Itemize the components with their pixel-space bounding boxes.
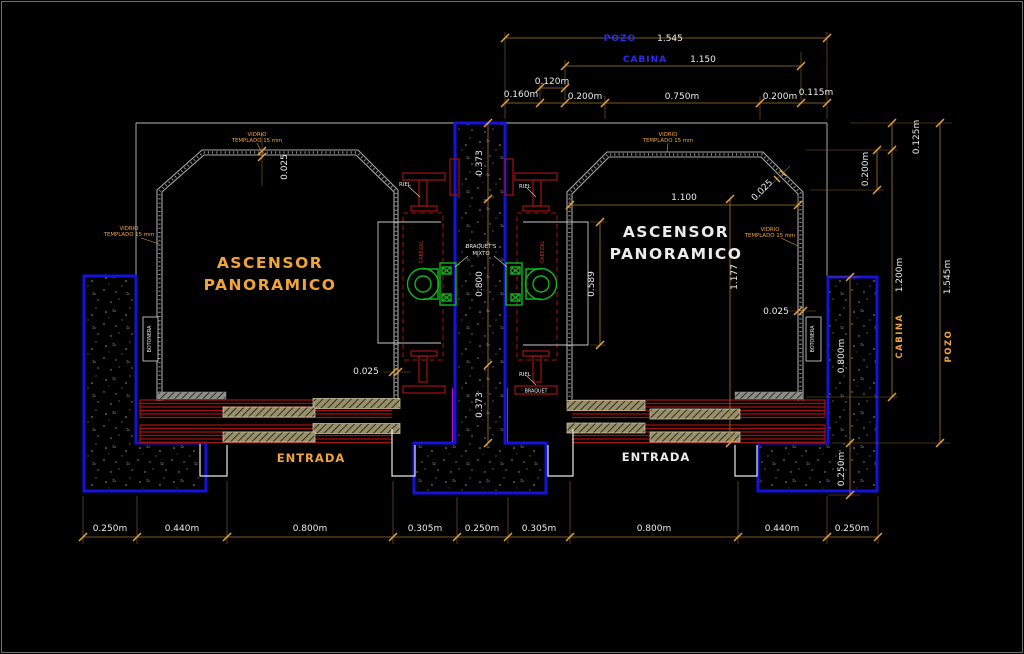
dim-pozo-top-value: 1.545 — [657, 34, 683, 44]
riel-label-top-right: RIEL — [519, 184, 531, 190]
cad-viewport: POZO 1.545 CABINA 1.150 0.120m 0.160m 0.… — [0, 0, 1024, 654]
dim-cabina-right-value: 1.200m — [895, 258, 905, 293]
elevator-plan-drawing: POZO 1.545 CABINA 1.150 0.120m 0.160m 0.… — [0, 0, 1024, 654]
right-cabin-title-1: ASCENSOR — [623, 223, 729, 241]
dim-cabina-top-label: CABINA — [623, 55, 667, 65]
riel-label-bottom-right: RIEL — [519, 372, 531, 378]
dim-0750m: 0.750m — [665, 92, 700, 102]
dim-pozo-right-label: POZO — [944, 330, 954, 363]
dim-0200m-rightside: 0.200m — [861, 152, 871, 187]
bottom-dimensions: 0.250m 0.440m 0.800m 0.305m 0.250m 0.305… — [93, 524, 870, 534]
dim-pozo-right-value: 1.545m — [943, 260, 953, 295]
dim-0025-left-bottom: 0.025 — [353, 367, 379, 377]
glass-thickness-dims: 0.025 0.025 0.025 0.025 — [280, 154, 789, 377]
right-cabezal-label: CABEZAL — [540, 241, 546, 264]
dim-0800m-right: 0.800m — [837, 339, 847, 374]
braquets-mixto-label-2: MIXTO — [472, 251, 489, 257]
top-dimensions: POZO 1.545 CABINA 1.150 0.120m 0.160m 0.… — [504, 34, 834, 102]
right-vidrio-side-2: TEMPLADO 15 mm — [744, 233, 796, 239]
dim-0025-left-top: 0.025 — [280, 154, 290, 180]
right-entrada-label: ENTRADA — [622, 450, 691, 464]
right-rail-assembly — [505, 159, 557, 394]
center-column-and-pit — [414, 123, 546, 493]
left-entrada-label: ENTRADA — [277, 451, 346, 465]
dim-bottom-0: 0.250m — [93, 524, 128, 534]
left-piston — [408, 263, 457, 305]
dim-pozo-top-label: POZO — [604, 34, 636, 44]
dim-0589: 0.589 — [587, 271, 597, 297]
right-botonera-label: BOTONERA — [810, 325, 816, 352]
dim-1100: 1.100 — [671, 193, 697, 203]
dim-0373-bottom: 0.373 — [475, 392, 485, 418]
dim-1177: 1.177 — [730, 264, 740, 290]
dim-0120m: 0.120m — [535, 77, 570, 87]
left-rail-assembly — [403, 159, 459, 393]
dim-bottom-2: 0.800m — [293, 524, 328, 534]
left-cabezal-label: CABEZAL — [419, 241, 425, 264]
right-piston — [506, 263, 557, 305]
dim-bottom-7: 0.440m — [765, 524, 800, 534]
dim-0250m-right: 0.250m — [837, 452, 847, 487]
right-vidrio-top-2: TEMPLADO 15 mm — [642, 138, 694, 144]
dim-0160m: 0.160m — [504, 90, 539, 100]
center-dimensions: 0.373 0.800 0.373 0.589 1.177 1.100 — [475, 150, 740, 418]
dim-bottom-3: 0.305m — [408, 524, 443, 534]
dim-0125m-right: 0.125m — [912, 120, 922, 155]
braquet-label: BRAQUET — [525, 389, 548, 395]
riel-label-top-left: RIEL — [399, 182, 411, 188]
right-cabin-sill — [735, 392, 802, 399]
dim-bottom-5: 0.305m — [522, 524, 557, 534]
left-cabin-sill — [158, 392, 226, 399]
dim-0025-right-diagonal: 0.025 — [750, 178, 775, 203]
dim-bottom-6: 0.800m — [637, 524, 672, 534]
dim-0373-top: 0.373 — [475, 150, 485, 176]
left-botonera-label: BOTONERA — [147, 325, 153, 352]
right-cabin-title-2: PANORAMICO — [610, 245, 743, 263]
dim-0800-center: 0.800 — [475, 271, 485, 297]
braquets-mixto-label-1: BRAQUET'S — [466, 244, 497, 250]
dim-cabina-top-value: 1.150 — [690, 55, 716, 65]
dim-bottom-1: 0.440m — [165, 524, 200, 534]
dim-bottom-8: 0.250m — [835, 524, 870, 534]
left-concrete-wall — [84, 276, 206, 491]
left-cabin-title-1: ASCENSOR — [217, 254, 323, 272]
left-cabin-title-2: PANORAMICO — [204, 276, 337, 294]
dim-bottom-4: 0.250m — [465, 524, 500, 534]
dim-0115m: 0.115m — [799, 88, 834, 98]
left-vidrio-top-2: TEMPLADO 15 mm — [231, 138, 283, 144]
dim-0025-right-side: 0.025 — [763, 307, 789, 317]
dim-0200m-left: 0.200m — [568, 92, 603, 102]
dim-0200m-right: 0.200m — [763, 92, 798, 102]
left-vidrio-side-2: TEMPLADO 15 mm — [103, 232, 155, 238]
dim-cabina-right-label: CABINA — [895, 313, 905, 358]
